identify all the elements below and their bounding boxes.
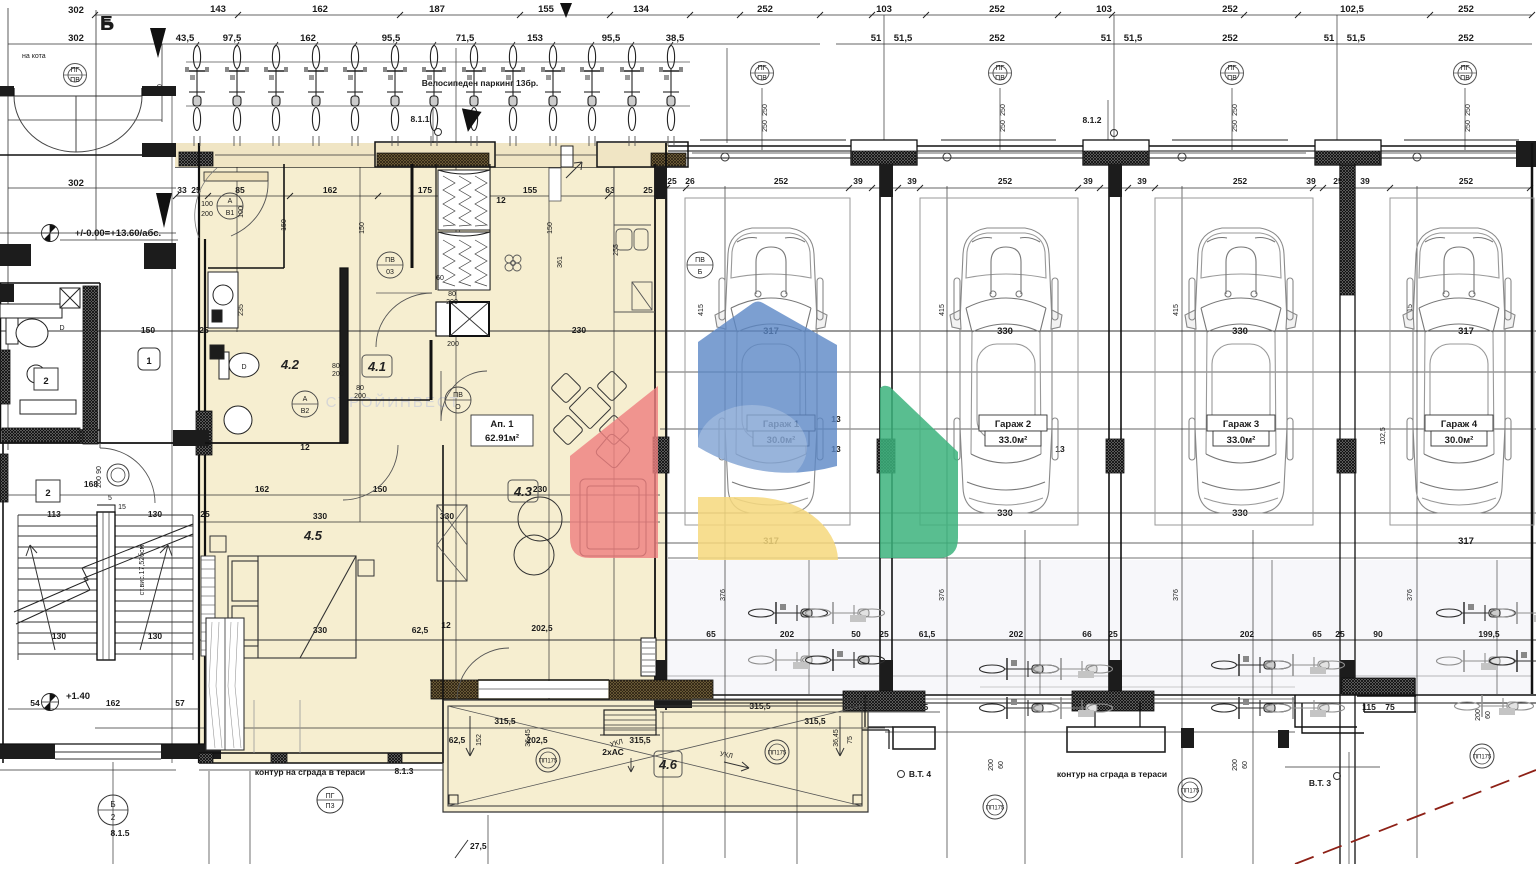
svg-text:252: 252 xyxy=(989,33,1005,44)
svg-text:13: 13 xyxy=(1055,444,1065,454)
svg-text:199,5: 199,5 xyxy=(1478,629,1500,639)
svg-text:202: 202 xyxy=(1009,629,1023,639)
svg-text:90: 90 xyxy=(96,466,103,474)
svg-text:25: 25 xyxy=(643,185,653,195)
svg-text:315,5: 315,5 xyxy=(494,716,516,726)
svg-text:200: 200 xyxy=(332,371,344,378)
svg-text:376: 376 xyxy=(1173,589,1180,601)
svg-text:235: 235 xyxy=(238,304,245,316)
svg-text:54: 54 xyxy=(30,698,40,708)
svg-text:250: 250 xyxy=(1465,120,1472,132)
svg-text:2: 2 xyxy=(111,813,116,822)
svg-text:317: 317 xyxy=(1458,536,1474,547)
svg-text:ПВ: ПВ xyxy=(70,77,80,84)
svg-text:контур на сграда в тераси: контур на сграда в тераси xyxy=(1057,769,1167,779)
svg-text:27,5: 27,5 xyxy=(470,841,487,851)
svg-text:330: 330 xyxy=(440,511,454,521)
svg-text:15: 15 xyxy=(118,504,126,511)
svg-text:130: 130 xyxy=(148,509,162,519)
svg-text:200: 200 xyxy=(447,341,459,348)
svg-text:62,5: 62,5 xyxy=(449,735,466,745)
svg-text:2: 2 xyxy=(45,488,50,499)
svg-text:175: 175 xyxy=(418,185,432,195)
svg-text:75: 75 xyxy=(847,736,854,744)
svg-text:250: 250 xyxy=(1232,104,1239,116)
svg-text:200: 200 xyxy=(1475,709,1482,721)
svg-text:143: 143 xyxy=(210,4,226,15)
svg-text:200: 200 xyxy=(446,299,458,306)
svg-text:202: 202 xyxy=(780,629,794,639)
svg-text:П3: П3 xyxy=(326,803,335,810)
svg-text:200: 200 xyxy=(1232,759,1239,771)
svg-text:252: 252 xyxy=(989,4,1005,15)
svg-text:330: 330 xyxy=(997,326,1013,337)
svg-text:4.3: 4.3 xyxy=(513,484,533,499)
svg-text:12: 12 xyxy=(496,195,506,205)
svg-text:113: 113 xyxy=(47,509,61,519)
svg-text:90: 90 xyxy=(1373,629,1383,639)
svg-text:1: 1 xyxy=(146,356,152,367)
svg-text:130: 130 xyxy=(52,631,66,641)
svg-text:ПВ: ПВ xyxy=(453,392,463,399)
svg-text:36,45: 36,45 xyxy=(833,729,840,747)
svg-text:51,5: 51,5 xyxy=(894,33,913,44)
svg-text:200: 200 xyxy=(988,759,995,771)
svg-text:5: 5 xyxy=(108,495,112,502)
svg-text:8.1.1: 8.1.1 xyxy=(411,114,430,124)
svg-text:103: 103 xyxy=(1096,4,1112,15)
svg-text:51: 51 xyxy=(871,33,882,44)
svg-text:60: 60 xyxy=(1242,761,1249,769)
svg-text:03: 03 xyxy=(386,269,394,276)
svg-text:50: 50 xyxy=(851,629,861,639)
svg-text:ПГ: ПГ xyxy=(758,65,767,72)
svg-text:317: 317 xyxy=(1458,326,1474,337)
svg-text:250: 250 xyxy=(762,120,769,132)
svg-text:162: 162 xyxy=(106,698,120,708)
svg-text:В.Т. 3: В.Т. 3 xyxy=(1309,778,1331,788)
svg-text:4.2: 4.2 xyxy=(280,357,300,372)
svg-text:33.0м²: 33.0м² xyxy=(999,435,1028,446)
svg-text:ПГ: ПГ xyxy=(326,793,335,800)
svg-text:8.1.2: 8.1.2 xyxy=(1083,115,1102,125)
svg-text:33.0м²: 33.0м² xyxy=(1227,435,1256,446)
svg-text:57: 57 xyxy=(175,698,185,708)
svg-text:330: 330 xyxy=(313,511,327,521)
svg-text:102,5: 102,5 xyxy=(1380,427,1387,445)
svg-text:80: 80 xyxy=(448,291,456,298)
svg-text:415: 415 xyxy=(939,304,946,316)
svg-text:ПГ: ПГ xyxy=(1228,65,1237,72)
svg-text:252: 252 xyxy=(1458,33,1474,44)
svg-text:Ап. 1: Ап. 1 xyxy=(490,419,514,430)
svg-text:376: 376 xyxy=(1407,589,1414,601)
svg-text:ПВ: ПВ xyxy=(1227,75,1237,82)
svg-text:25: 25 xyxy=(667,176,677,186)
svg-text:150: 150 xyxy=(547,222,554,234)
svg-text:26: 26 xyxy=(685,176,695,186)
svg-text:152: 152 xyxy=(476,734,483,746)
svg-text:В1: В1 xyxy=(226,210,235,217)
svg-text:134: 134 xyxy=(633,4,650,15)
svg-text:252: 252 xyxy=(774,176,788,186)
svg-text:330: 330 xyxy=(1232,326,1248,337)
svg-text:230: 230 xyxy=(533,484,547,494)
svg-text:60: 60 xyxy=(1485,711,1492,719)
svg-text:на кота: на кота xyxy=(22,53,46,60)
svg-text:2: 2 xyxy=(43,376,48,387)
svg-text:100: 100 xyxy=(201,201,213,208)
svg-text:Б: Б xyxy=(698,269,703,276)
svg-text:ПВ: ПВ xyxy=(757,75,767,82)
svg-text:230: 230 xyxy=(572,325,586,335)
svg-text:В.Т. 4: В.Т. 4 xyxy=(909,769,931,779)
svg-text:ПВ: ПВ xyxy=(1460,75,1470,82)
svg-text:8.1.5: 8.1.5 xyxy=(111,828,130,838)
svg-text:30.0м²: 30.0м² xyxy=(1445,435,1474,446)
svg-text:250: 250 xyxy=(762,104,769,116)
svg-text:162: 162 xyxy=(300,33,316,44)
svg-text:162: 162 xyxy=(323,185,337,195)
svg-text:Велосипеден паркинг 13бр.: Велосипеден паркинг 13бр. xyxy=(422,78,539,88)
svg-text:А: А xyxy=(228,198,233,205)
svg-text:+/-0.00=+13.60/абс.: +/-0.00=+13.60/абс. xyxy=(75,228,161,239)
svg-text:315,5: 315,5 xyxy=(804,716,826,726)
svg-text:ПВ: ПВ xyxy=(995,75,1005,82)
svg-text:252: 252 xyxy=(1222,4,1238,15)
svg-text:О: О xyxy=(455,404,461,411)
svg-text:95,5: 95,5 xyxy=(382,33,401,44)
svg-text:D: D xyxy=(241,364,246,371)
svg-text:252: 252 xyxy=(1233,176,1247,186)
svg-text:200: 200 xyxy=(96,476,103,488)
svg-text:252: 252 xyxy=(1458,4,1474,15)
svg-text:85: 85 xyxy=(235,185,245,195)
svg-text:4.1: 4.1 xyxy=(367,359,386,374)
svg-text:4.5: 4.5 xyxy=(303,528,323,543)
svg-text:D: D xyxy=(59,325,64,332)
svg-text:150: 150 xyxy=(359,222,366,234)
svg-text:А: А xyxy=(303,396,308,403)
svg-text:+1.40: +1.40 xyxy=(66,691,90,702)
svg-text:80: 80 xyxy=(356,385,364,392)
svg-text:415: 415 xyxy=(698,304,705,316)
svg-text:302: 302 xyxy=(68,33,84,44)
svg-text:51,5: 51,5 xyxy=(1124,33,1143,44)
svg-text:252: 252 xyxy=(998,176,1012,186)
svg-text:315,5: 315,5 xyxy=(629,735,651,745)
svg-text:202: 202 xyxy=(1240,629,1254,639)
svg-text:Гараж 3: Гараж 3 xyxy=(1223,419,1259,430)
svg-text:62.91м²: 62.91м² xyxy=(485,433,519,444)
svg-text:103: 103 xyxy=(876,4,892,15)
svg-text:150: 150 xyxy=(141,325,155,335)
svg-text:65: 65 xyxy=(1312,629,1322,639)
svg-text:65: 65 xyxy=(706,629,716,639)
svg-text:контур на сграда в тераси: контур на сграда в тераси xyxy=(255,767,365,777)
svg-text:250: 250 xyxy=(1000,104,1007,116)
svg-text:80: 80 xyxy=(332,363,340,370)
svg-text:В2: В2 xyxy=(301,408,310,415)
svg-text:252: 252 xyxy=(1222,33,1238,44)
svg-text:415: 415 xyxy=(1173,304,1180,316)
svg-text:36,45: 36,45 xyxy=(525,729,532,747)
svg-text:252: 252 xyxy=(1459,176,1473,186)
svg-text:39: 39 xyxy=(853,176,863,186)
svg-text:ст.вис.17,52бсм: ст.вис.17,52бсм xyxy=(138,544,146,595)
svg-text:ПГ: ПГ xyxy=(71,67,80,74)
svg-text:33: 33 xyxy=(177,185,187,195)
svg-text:250: 250 xyxy=(1000,120,1007,132)
svg-text:376: 376 xyxy=(939,589,946,601)
svg-text:200: 200 xyxy=(201,211,213,218)
svg-text:162: 162 xyxy=(312,4,328,15)
svg-text:153: 153 xyxy=(527,33,543,44)
svg-text:Гараж 2: Гараж 2 xyxy=(995,419,1031,430)
svg-text:38,5: 38,5 xyxy=(666,33,685,44)
svg-text:4.6: 4.6 xyxy=(658,757,678,772)
svg-text:71,5: 71,5 xyxy=(456,33,475,44)
svg-text:95,5: 95,5 xyxy=(602,33,621,44)
svg-text:39: 39 xyxy=(1137,176,1147,186)
svg-text:Б: Б xyxy=(100,13,114,35)
svg-text:Гараж 4: Гараж 4 xyxy=(1441,419,1478,430)
svg-text:187: 187 xyxy=(429,4,445,15)
svg-text:60: 60 xyxy=(998,761,1005,769)
svg-text:39: 39 xyxy=(907,176,917,186)
svg-text:51: 51 xyxy=(1324,33,1335,44)
svg-text:39: 39 xyxy=(1360,176,1370,186)
svg-text:66: 66 xyxy=(1082,629,1092,639)
svg-text:200: 200 xyxy=(354,393,366,400)
svg-text:361: 361 xyxy=(557,256,564,268)
svg-text:60: 60 xyxy=(436,275,444,282)
svg-text:155: 155 xyxy=(523,185,537,195)
svg-text:ПГ: ПГ xyxy=(996,65,1005,72)
svg-text:250: 250 xyxy=(1465,104,1472,116)
svg-text:61,5: 61,5 xyxy=(919,629,936,639)
svg-text:8.1.3: 8.1.3 xyxy=(395,766,414,776)
svg-text:39: 39 xyxy=(1083,176,1093,186)
svg-text:43,5: 43,5 xyxy=(176,33,195,44)
svg-text:ПВ: ПВ xyxy=(385,257,395,264)
svg-text:Б: Б xyxy=(110,800,115,809)
svg-text:302: 302 xyxy=(68,178,84,189)
svg-text:2хАС: 2хАС xyxy=(602,747,624,757)
svg-text:51: 51 xyxy=(1101,33,1112,44)
svg-text:39: 39 xyxy=(1306,176,1316,186)
svg-text:302: 302 xyxy=(68,5,84,16)
svg-text:252: 252 xyxy=(757,4,773,15)
svg-text:51,5: 51,5 xyxy=(1347,33,1366,44)
svg-text:202,5: 202,5 xyxy=(531,623,553,633)
svg-text:130: 130 xyxy=(148,631,162,641)
svg-text:ПГ: ПГ xyxy=(1461,65,1470,72)
svg-text:162: 162 xyxy=(255,484,269,494)
svg-text:102,5: 102,5 xyxy=(1340,4,1364,15)
svg-text:63: 63 xyxy=(605,185,615,195)
svg-text:250: 250 xyxy=(1232,120,1239,132)
svg-text:ПВ: ПВ xyxy=(695,257,705,264)
svg-text:155: 155 xyxy=(538,4,555,15)
svg-text:62,5: 62,5 xyxy=(412,625,429,635)
svg-text:376: 376 xyxy=(720,589,727,601)
